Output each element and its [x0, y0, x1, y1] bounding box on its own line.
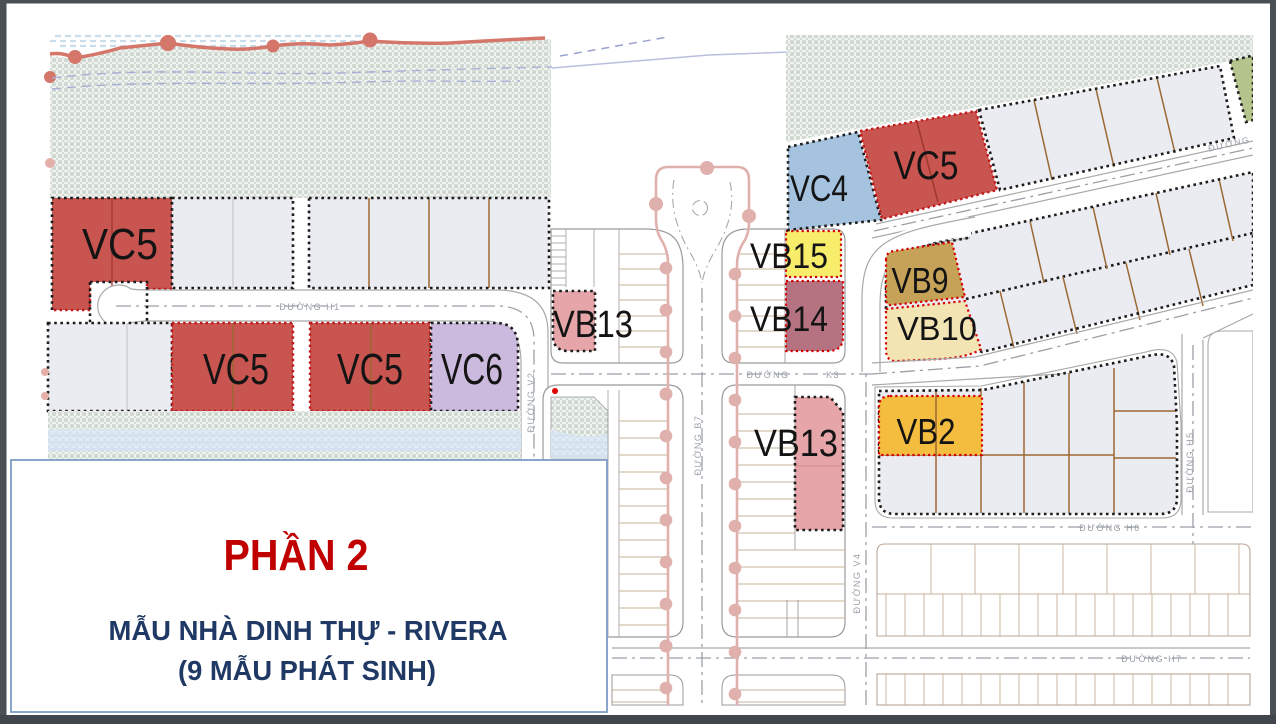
svg-text:VB15: VB15	[750, 237, 828, 276]
svg-text:(9 MẪU PHÁT SINH): (9 MẪU PHÁT SINH)	[178, 655, 436, 686]
svg-text:ĐƯỜNG V4: ĐƯỜNG V4	[852, 553, 862, 614]
svg-text:VC5: VC5	[82, 220, 158, 269]
svg-text:ĐƯỜNG: ĐƯỜNG	[747, 370, 790, 380]
svg-text:ĐƯỜNG V2: ĐƯỜNG V2	[526, 372, 536, 433]
svg-text:VC5: VC5	[894, 144, 959, 188]
svg-text:VB9: VB9	[892, 260, 949, 301]
svg-text:K3: K3	[826, 370, 840, 380]
svg-text:ĐƯỜNG B7: ĐƯỜNG B7	[693, 415, 703, 476]
svg-text:VB2: VB2	[897, 411, 956, 452]
svg-text:VC5: VC5	[203, 345, 269, 394]
svg-text:VC4: VC4	[790, 168, 848, 209]
svg-text:ĐƯỜNG H5: ĐƯỜNG H5	[1185, 431, 1195, 492]
svg-text:ĐƯỜNG H6: ĐƯỜNG H6	[1079, 523, 1140, 533]
svg-text:MẪU NHÀ DINH THỰ - RIVERA: MẪU NHÀ DINH THỰ - RIVERA	[109, 615, 508, 646]
svg-text:VB10: VB10	[897, 310, 977, 347]
svg-text:VB13: VB13	[553, 304, 633, 346]
svg-text:ĐƯỜNG H7: ĐƯỜNG H7	[1121, 654, 1182, 664]
svg-text:VB14: VB14	[750, 300, 828, 339]
svg-text:VC6: VC6	[441, 345, 503, 394]
svg-text:ĐƯỜNG H1: ĐƯỜNG H1	[279, 302, 340, 312]
svg-text:VC5: VC5	[337, 345, 403, 394]
svg-text:VB13: VB13	[754, 423, 838, 465]
svg-text:PHẦN 2: PHẦN 2	[224, 530, 369, 580]
